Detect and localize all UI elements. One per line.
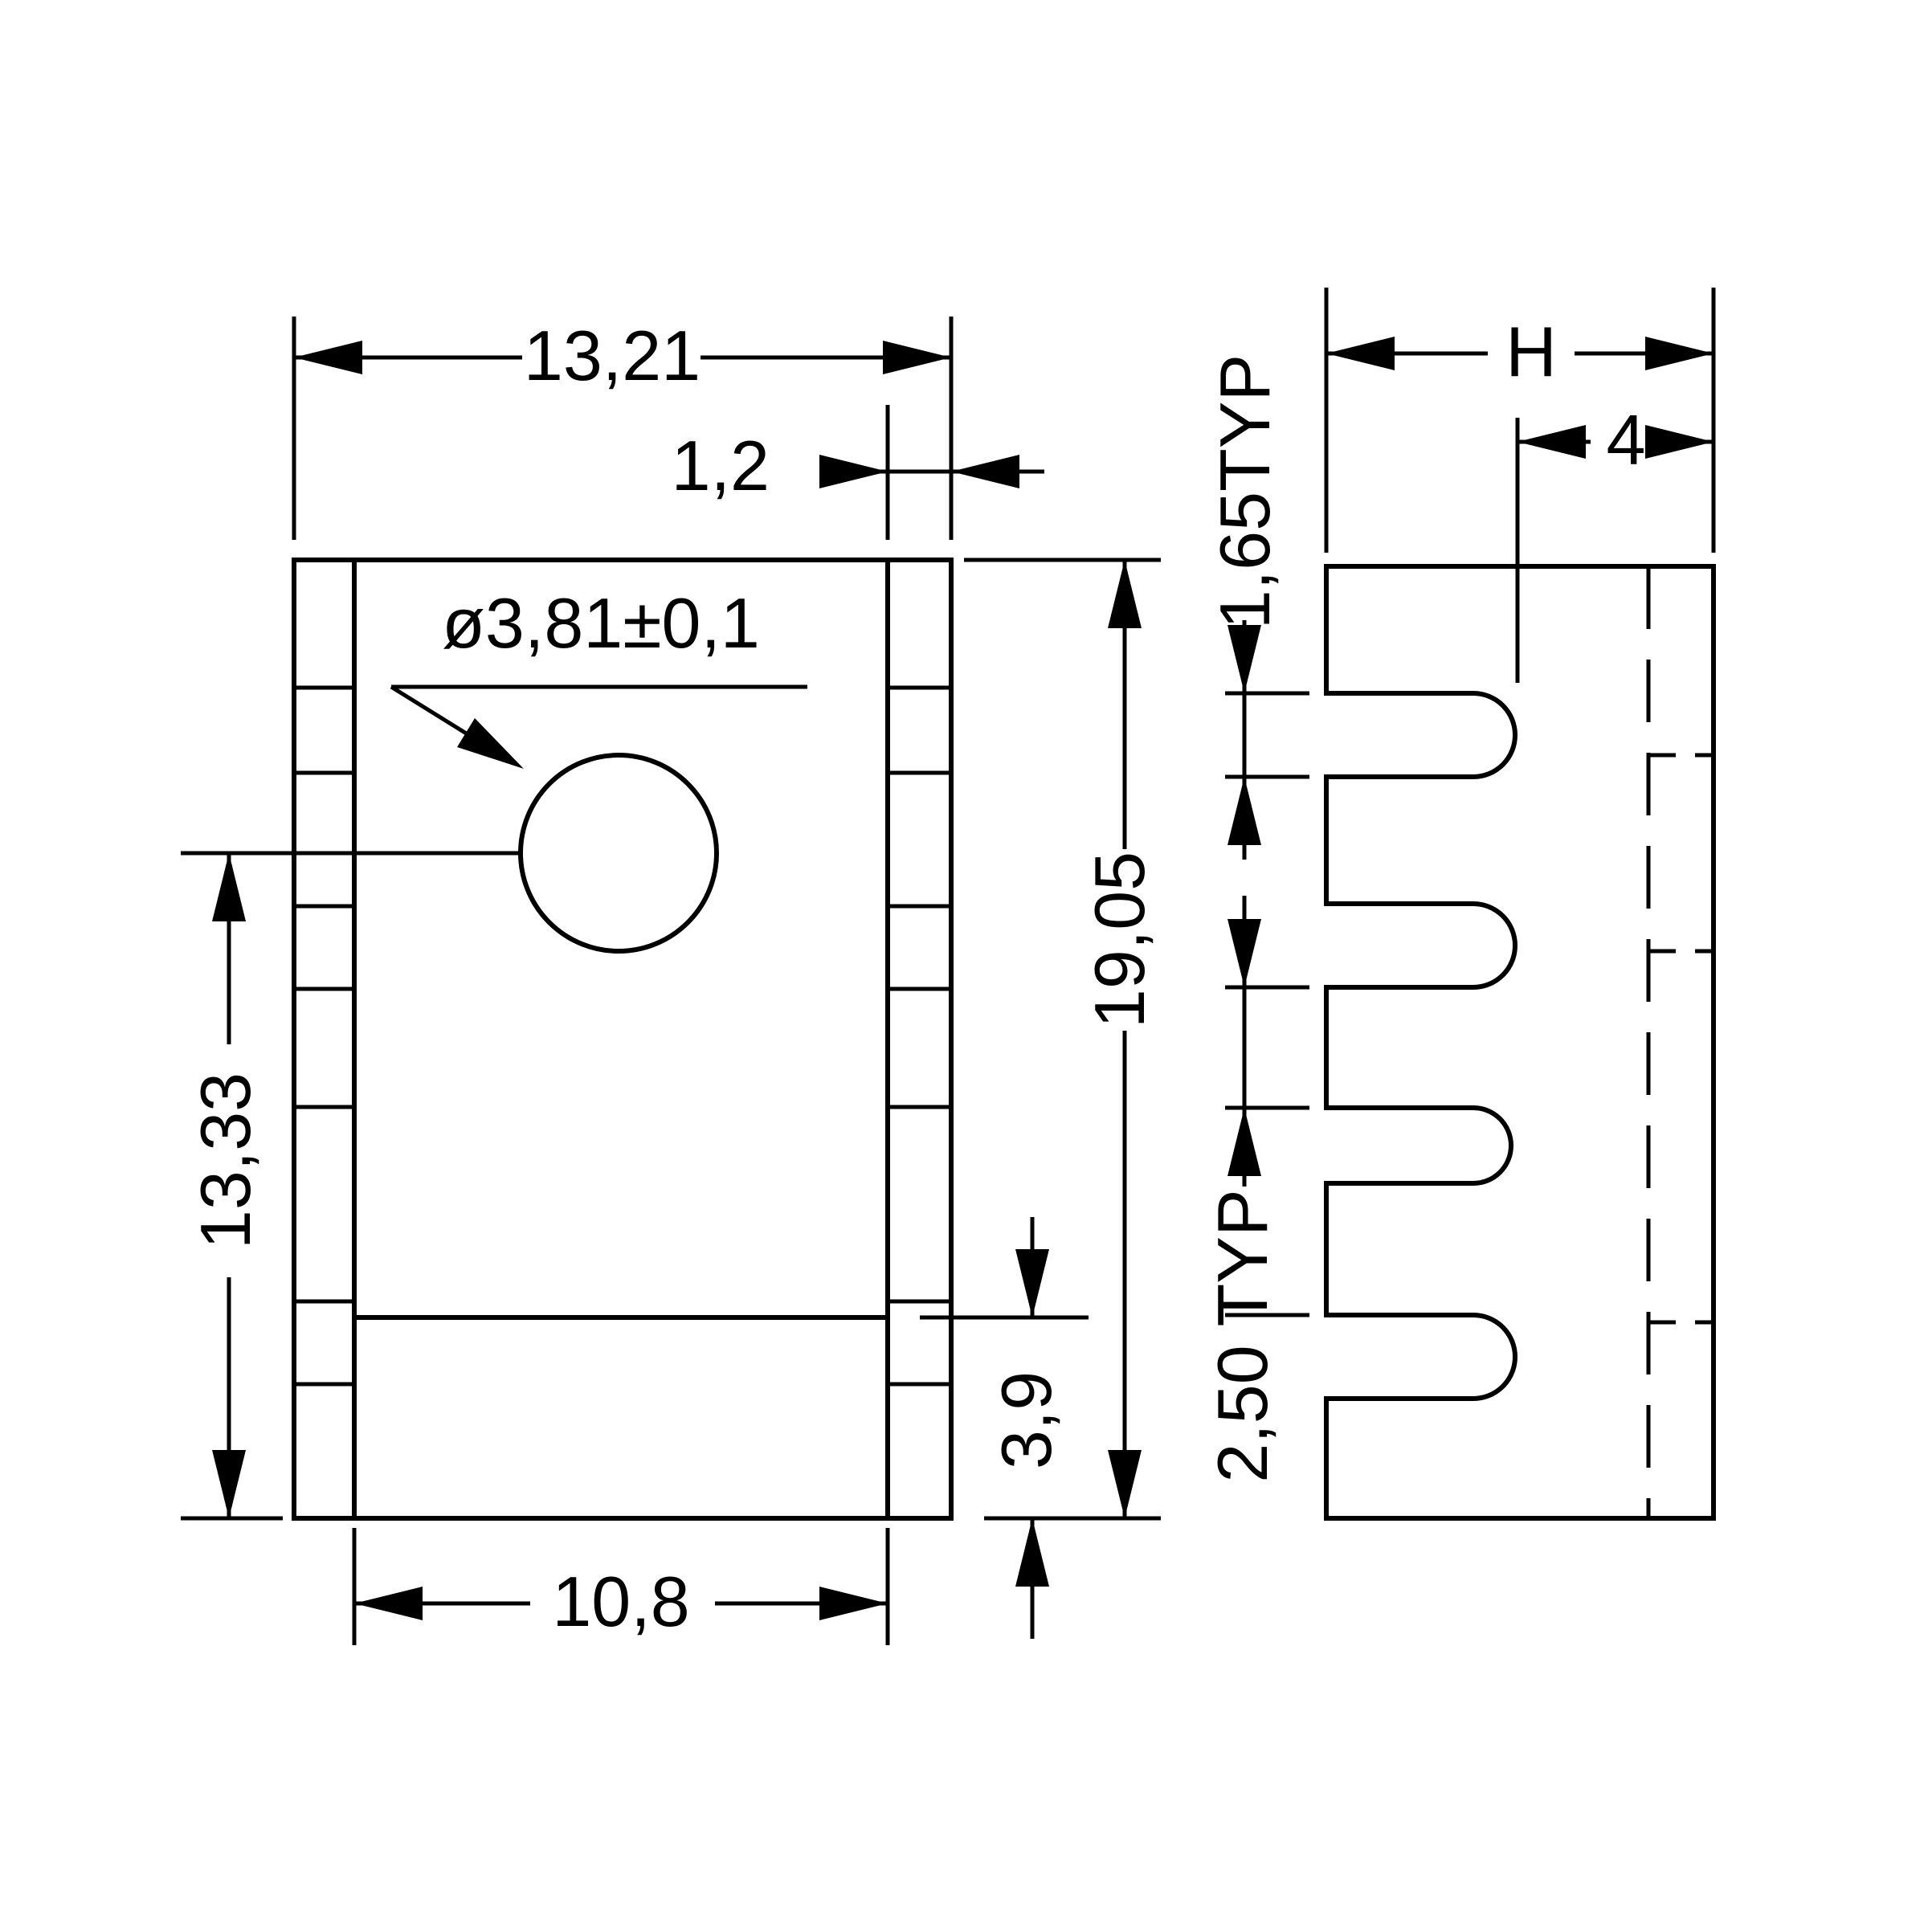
dim-label-depth: H — [1505, 312, 1557, 391]
arrowhead — [1227, 625, 1261, 693]
dim-label-plate-thickness: 1,2 — [672, 426, 770, 505]
arrowhead — [883, 341, 951, 374]
hole-callout: ø3,81±0,1 — [391, 583, 807, 769]
arrowhead — [1517, 425, 1586, 459]
arrowhead — [457, 718, 524, 769]
front-body-outline — [294, 560, 951, 1518]
dim-tab-depth: 4 — [1517, 400, 1714, 683]
arrowhead — [1645, 425, 1714, 459]
technical-drawing: 13,21 1,2 ø3,81±0,1 13,33 19,05 3,9 — [0, 0, 1928, 1928]
dim-depth: H — [1326, 288, 1714, 553]
arrowhead — [212, 853, 246, 921]
left-rail-ticks — [294, 688, 354, 1384]
dim-center-to-bottom: 13,33 — [186, 853, 265, 1518]
arrowhead — [819, 455, 888, 488]
side-view — [1225, 566, 1714, 1518]
hidden-hole-edges — [1648, 755, 1714, 1322]
dim-label-total-height: 19,05 — [1080, 852, 1159, 1028]
dim-plate-thickness: 1,2 — [672, 405, 1044, 540]
arrowhead — [212, 1450, 246, 1518]
dim-label-center-to-bottom: 13,33 — [186, 1072, 265, 1249]
arrowhead — [1227, 777, 1261, 845]
arrowhead — [1108, 1450, 1142, 1518]
dim-width-top: 13,21 — [294, 316, 951, 540]
arrowhead — [1015, 1249, 1049, 1317]
dim-label-width-top: 13,21 — [524, 316, 701, 395]
side-profile — [1326, 566, 1714, 1518]
arrowhead — [1645, 337, 1714, 370]
arrowhead — [354, 1587, 423, 1620]
arrowhead — [1227, 1108, 1261, 1176]
arrowhead — [819, 1587, 888, 1620]
dim-label-fin-gap: 2,50 TYP — [1203, 1189, 1282, 1482]
arrowhead — [1015, 1518, 1049, 1587]
arrowhead — [951, 455, 1019, 488]
arrowhead — [1108, 560, 1142, 628]
arrowhead — [1326, 337, 1395, 370]
hole-callout-label: ø3,81±0,1 — [442, 583, 760, 663]
right-rail-ticks — [888, 688, 951, 1384]
mounting-hole — [521, 755, 717, 951]
dim-fin-gap: 2,50 TYP — [1203, 896, 1309, 1483]
dim-label-width-bottom: 10,8 — [552, 1562, 689, 1641]
dim-fin-thickness: 1,65TYP — [1205, 354, 1309, 860]
front-view — [181, 560, 951, 1518]
dim-width-bottom: 10,8 — [354, 1528, 888, 1645]
dim-label-step-height: 3,9 — [986, 1371, 1066, 1469]
arrowhead — [294, 341, 362, 374]
arrowhead — [1227, 919, 1261, 987]
dim-label-fin-thickness: 1,65TYP — [1205, 354, 1285, 629]
dim-label-tab-depth: 4 — [1607, 400, 1646, 480]
drawing-canvas: 13,21 1,2 ø3,81±0,1 13,33 19,05 3,9 — [0, 0, 1928, 1928]
dim-step-height: 3,9 — [920, 1217, 1089, 1639]
